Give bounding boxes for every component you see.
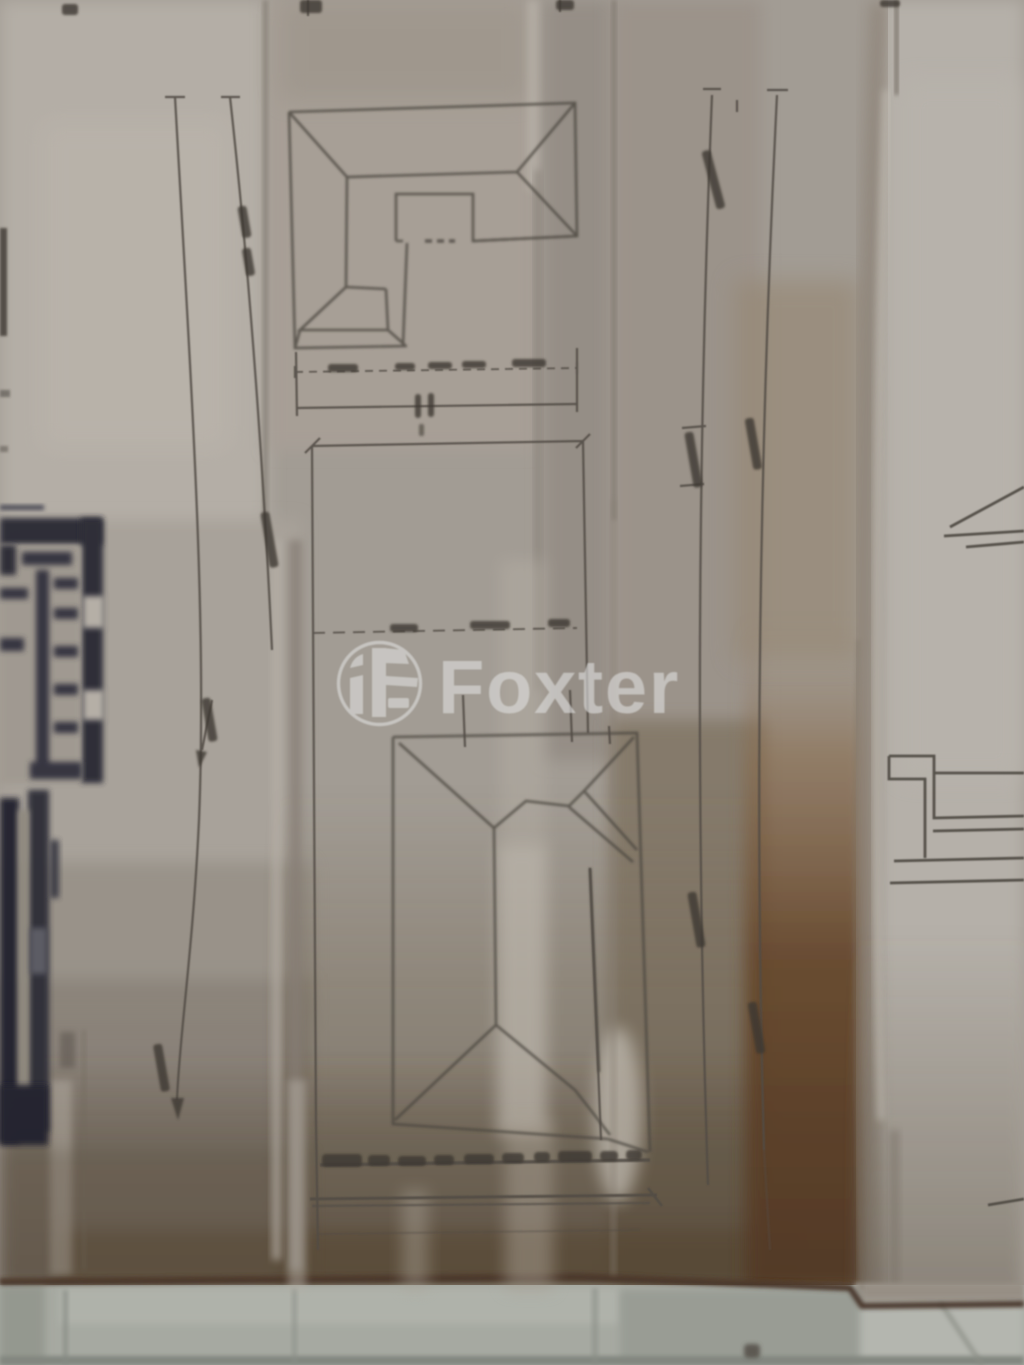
svg-text:Foxter: Foxter: [438, 645, 680, 730]
